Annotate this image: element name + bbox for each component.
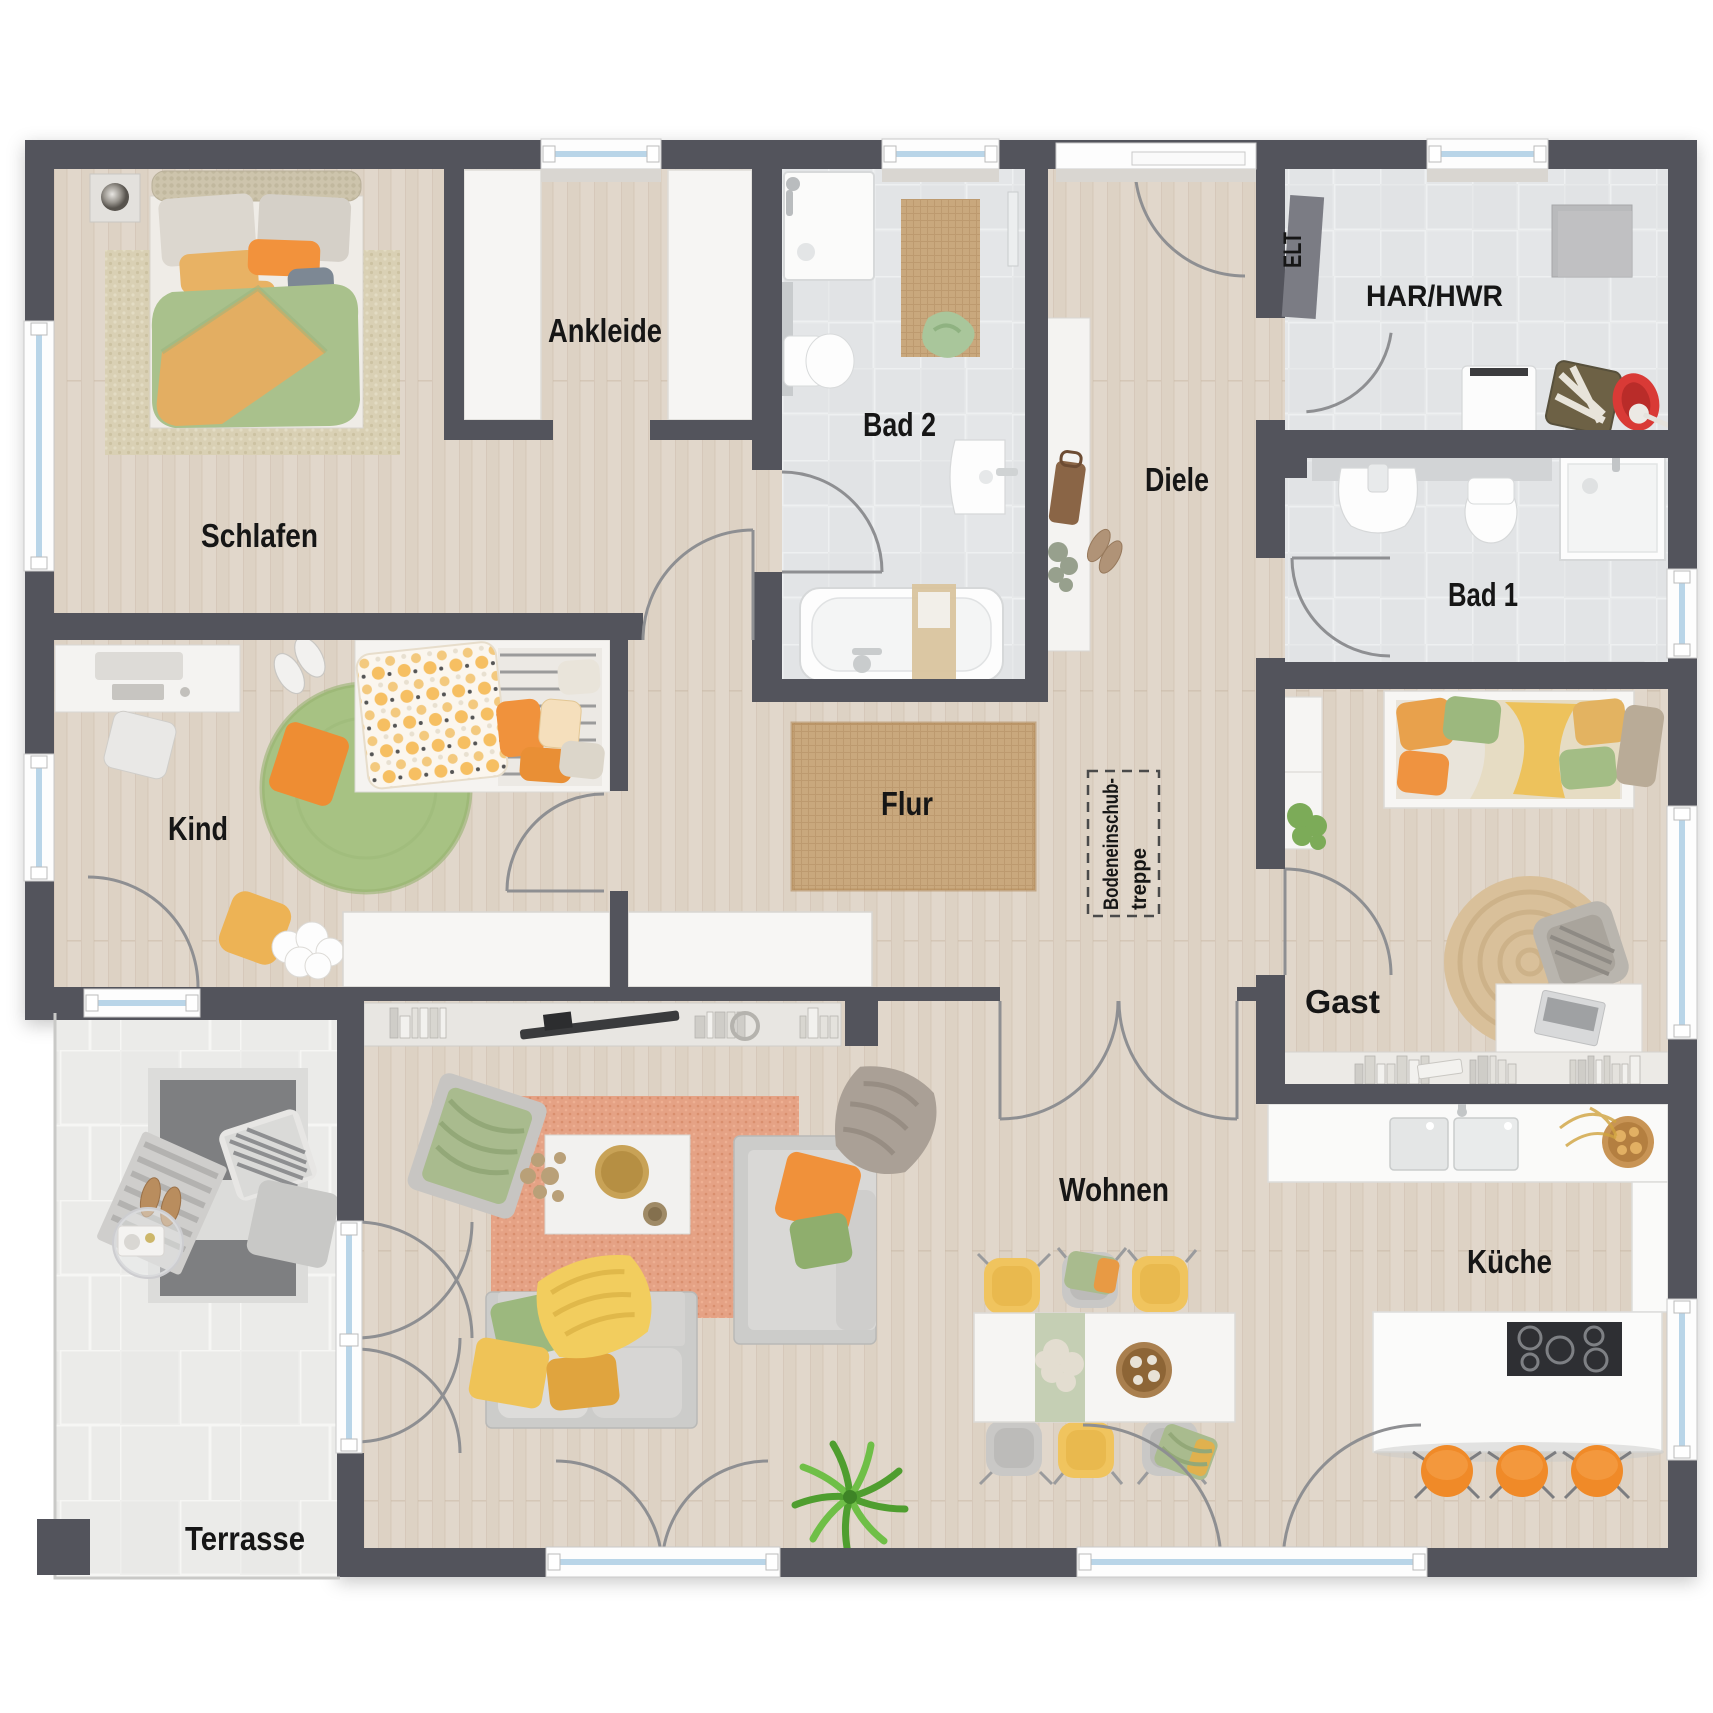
svg-text:Bad 2: Bad 2 [863,406,936,443]
svg-text:HAR/HWR: HAR/HWR [1366,280,1503,313]
svg-text:Schlafen: Schlafen [201,517,318,554]
svg-text:Wohnen: Wohnen [1059,1171,1169,1208]
svg-text:Terrasse: Terrasse [185,1520,305,1557]
svg-text:Kind: Kind [168,810,228,847]
svg-text:Flur: Flur [881,785,933,822]
svg-text:Ankleide: Ankleide [548,312,662,349]
svg-text:Gast: Gast [1305,983,1380,1020]
svg-text:Diele: Diele [1145,461,1209,498]
svg-text:Bad 1: Bad 1 [1448,576,1518,613]
svg-text:ELT: ELT [1279,232,1307,268]
svg-text:treppe: treppe [1128,848,1151,910]
svg-text:Küche: Küche [1467,1243,1552,1280]
svg-text:Bodeneinschub-: Bodeneinschub- [1100,778,1123,910]
